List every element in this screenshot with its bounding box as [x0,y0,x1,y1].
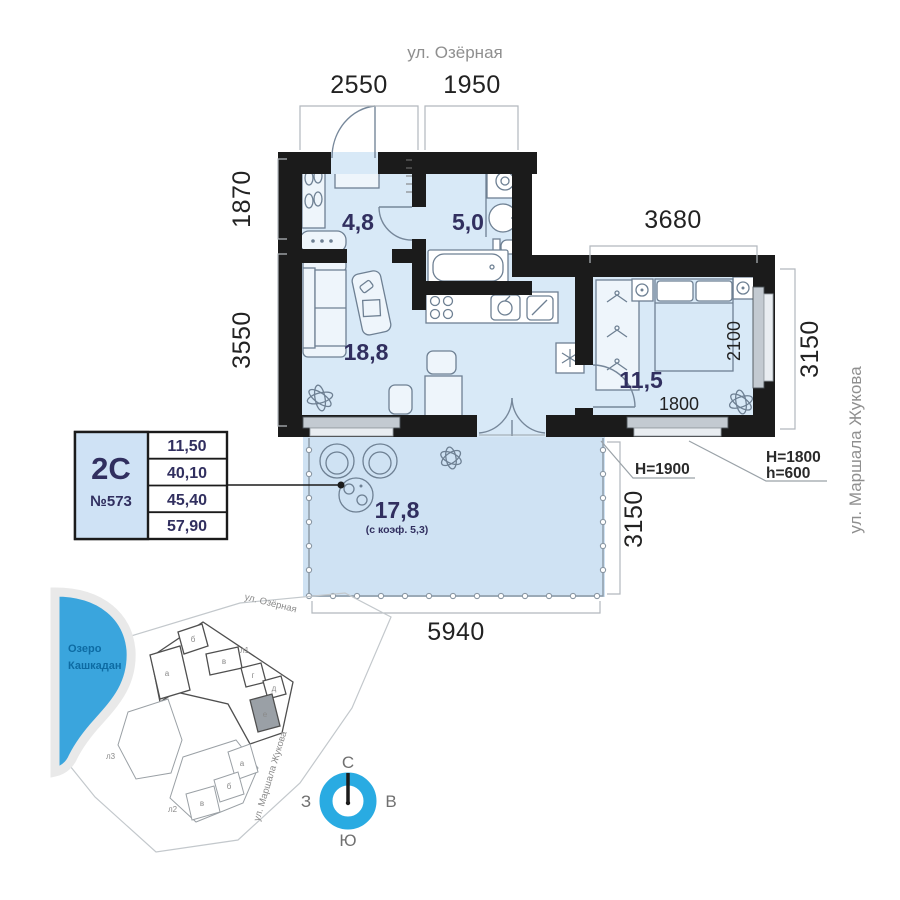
height-terrace-door: H=1900 [635,461,690,478]
apartment-number: №573 [90,493,132,510]
dim-bedroom-window-bottom: 1800 [659,394,699,414]
svg-text:г: г [252,671,255,680]
chair [389,385,412,414]
dim-terrace-right: 3150 [620,490,648,548]
apartment-info-card: 2С №573 11,50 40,10 45,40 57,90 [75,432,227,539]
room-label-terrace: 17,8 [375,497,420,523]
bedroom-window-south [627,417,728,428]
compass-north: С [342,753,354,772]
site-label-l1: л1 [240,646,250,655]
dim-bedroom-right: 3150 [796,320,824,378]
svg-text:д: д [272,684,277,693]
street-label-top: ул. Озёрная [407,43,502,62]
svg-text:в: в [222,657,226,666]
compass-south: Ю [339,831,356,850]
entrance-door-swing [332,106,375,158]
floor-plan-page: ул. Озёрная ул. Маршала Жукова 2550 1950… [0,0,900,900]
area-value: 40,10 [167,465,207,482]
compass: С В Ю З [301,753,397,850]
compass-west: З [301,792,311,811]
svg-text:б: б [191,635,196,644]
svg-text:а: а [240,759,245,768]
area-value: 57,90 [167,518,207,535]
site-street-right: ул. Маршала Жукова [252,729,290,822]
svg-text:а: а [165,669,170,678]
plan-type: 2С [91,451,131,486]
site-map: Озеро Кашкадан л1 л2 л3 а б в г д е [55,592,391,852]
dim-left-lower: 3550 [228,311,256,369]
dim-left-upper: 1870 [228,170,256,228]
room-label-bedroom: 11,5 [619,367,663,393]
area-value: 45,40 [167,492,207,509]
site-label-l3: л3 [106,752,116,761]
floor-plan-canvas: ул. Озёрная ул. Маршала Жукова 2550 1950… [0,0,900,900]
site-label-l2: л2 [168,805,178,814]
dim-top-right: 1950 [443,71,501,99]
lake-label-line2: Кашкадан [68,660,122,672]
svg-text:е: е [263,710,268,719]
dim-bedroom-window: 2100 [724,321,744,361]
site-street-top: ул. Озёрная [243,592,297,616]
lake-label-line1: Озеро [68,643,102,655]
area-value: 11,50 [167,438,206,455]
room-label-living: 18,8 [344,339,389,365]
dim-terrace-bottom: 5940 [427,618,485,646]
terrace-coef-note: (с коэф. 5,3) [366,524,429,536]
svg-text:б: б [227,782,232,791]
bedroom-window-east [753,287,764,388]
room-label-hall: 4,8 [342,209,374,235]
living-window [303,417,400,428]
compass-east: В [385,792,396,811]
dim-bedroom-top: 3680 [644,206,702,234]
height-bedroom-window: H=1800 [766,449,821,466]
height-bedroom-sill: h=600 [766,465,810,482]
dim-top-left: 2550 [330,71,388,99]
street-label-right: ул. Маршала Жукова [846,366,865,534]
svg-text:в: в [200,799,204,808]
room-label-bathroom: 5,0 [452,209,484,235]
chair [427,351,456,374]
